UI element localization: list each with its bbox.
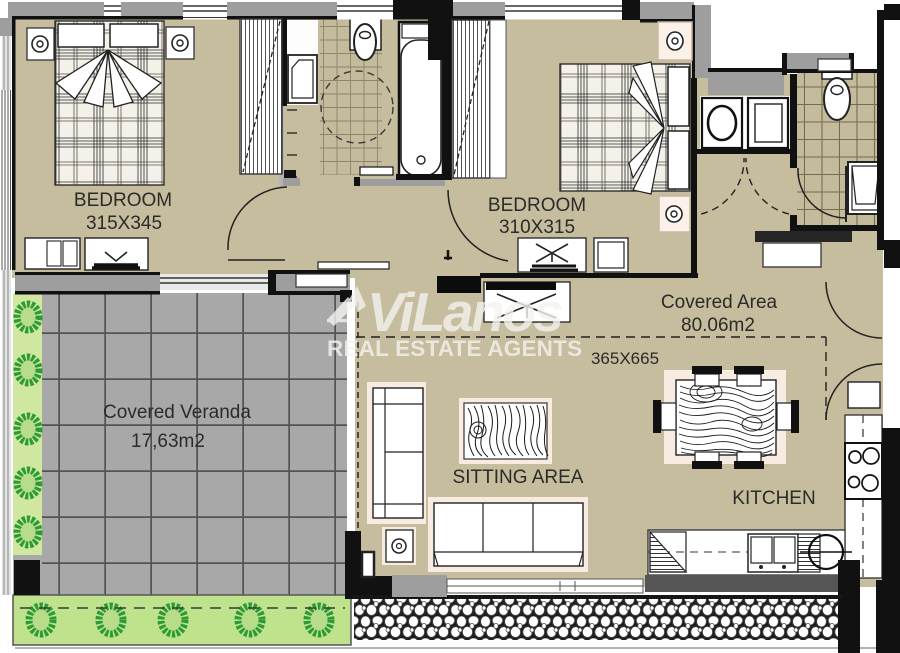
svg-text:310X315: 310X315 <box>499 217 575 238</box>
svg-text:Covered Area: Covered Area <box>661 292 778 313</box>
svg-text:SITTING AREA: SITTING AREA <box>453 467 584 488</box>
svg-text:Covered Veranda: Covered Veranda <box>103 402 251 423</box>
svg-text:315X345: 315X345 <box>86 213 162 234</box>
svg-text:17,63m2: 17,63m2 <box>131 431 205 452</box>
svg-text:BEDROOM: BEDROOM <box>488 195 586 216</box>
svg-text:ViLanos: ViLanos <box>367 281 562 343</box>
svg-text:BEDROOM: BEDROOM <box>74 190 172 211</box>
svg-text:365X665: 365X665 <box>591 349 659 368</box>
svg-text:REAL ESTATE AGENTS: REAL ESTATE AGENTS <box>327 336 582 361</box>
svg-text:80.06m2: 80.06m2 <box>681 315 755 336</box>
svg-text:KITCHEN: KITCHEN <box>732 488 815 509</box>
